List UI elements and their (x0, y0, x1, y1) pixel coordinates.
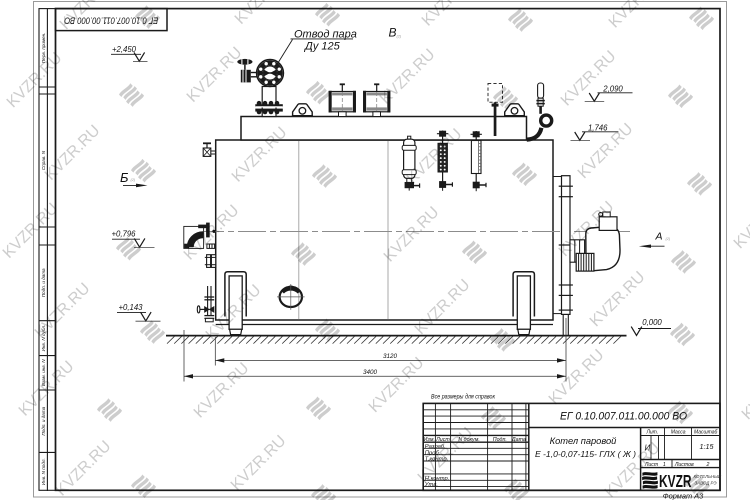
svg-text:KVZR: KVZR (659, 471, 692, 491)
svg-text:Лит.: Лит. (645, 430, 658, 436)
svg-text:Подп.: Подп. (493, 437, 507, 443)
svg-text:(2): (2) (397, 35, 402, 39)
svg-text:3400: 3400 (363, 369, 378, 376)
svg-text:+0,796: +0,796 (111, 230, 136, 239)
svg-text:2: 2 (706, 462, 710, 468)
svg-text:1: 1 (663, 462, 666, 468)
svg-text:В: В (389, 25, 397, 39)
svg-text:0,000: 0,000 (642, 318, 662, 327)
svg-text:Дата: Дата (511, 437, 526, 443)
svg-text:Ду 125: Ду 125 (303, 41, 341, 53)
svg-text:Е -1,0-0,07-115- ГЛХ ( Ж ): Е -1,0-0,07-115- ГЛХ ( Ж ) (535, 449, 636, 459)
svg-text:Котел паровой: Котел паровой (550, 436, 617, 446)
svg-text:1:15: 1:15 (700, 442, 715, 451)
svg-text:А: А (655, 231, 663, 243)
svg-text:Масштаб: Масштаб (694, 430, 718, 436)
svg-text:(2): (2) (666, 237, 671, 241)
svg-text:Подп. и дата: Подп. и дата (41, 406, 46, 435)
svg-text:Справ. N: Справ. N (41, 150, 46, 170)
svg-text:(2): (2) (131, 178, 136, 182)
svg-text:Инв. N подл.: Инв. N подл. (41, 458, 46, 485)
svg-text:Все размеры для справок: Все размеры для справок (431, 393, 496, 401)
svg-text:Подп. и дата: Подп. и дата (41, 268, 46, 297)
svg-text:Изм.: Изм. (424, 437, 435, 443)
svg-text:Масса: Масса (671, 430, 686, 436)
svg-text:+2,450: +2,450 (112, 45, 137, 54)
svg-text:3120: 3120 (383, 353, 398, 360)
svg-text:Б: Б (120, 170, 129, 185)
svg-text:+0,143: +0,143 (118, 303, 143, 312)
svg-text:Листов: Листов (674, 462, 694, 468)
svg-text:2,090: 2,090 (602, 84, 623, 93)
svg-text:1,746: 1,746 (588, 123, 608, 132)
